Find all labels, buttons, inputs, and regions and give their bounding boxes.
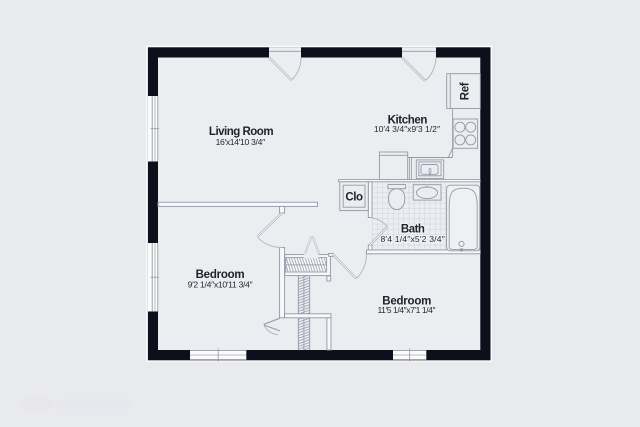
svg-text:9′2 1/4″x10′11 3/4″: 9′2 1/4″x10′11 3/4″ [188,279,253,289]
svg-text:11′5 1/4″x7′1 1/4″: 11′5 1/4″x7′1 1/4″ [377,305,435,315]
svg-text:Clo: Clo [345,192,363,204]
svg-text:16′x14′10 3/4″: 16′x14′10 3/4″ [216,137,266,147]
svg-text:8′4 1/4″x5′2 3/4″: 8′4 1/4″x5′2 3/4″ [380,234,444,244]
svg-text:10′4 3/4″x9′3 1/2″: 10′4 3/4″x9′3 1/2″ [374,124,440,134]
svg-text:Ref: Ref [460,82,472,100]
